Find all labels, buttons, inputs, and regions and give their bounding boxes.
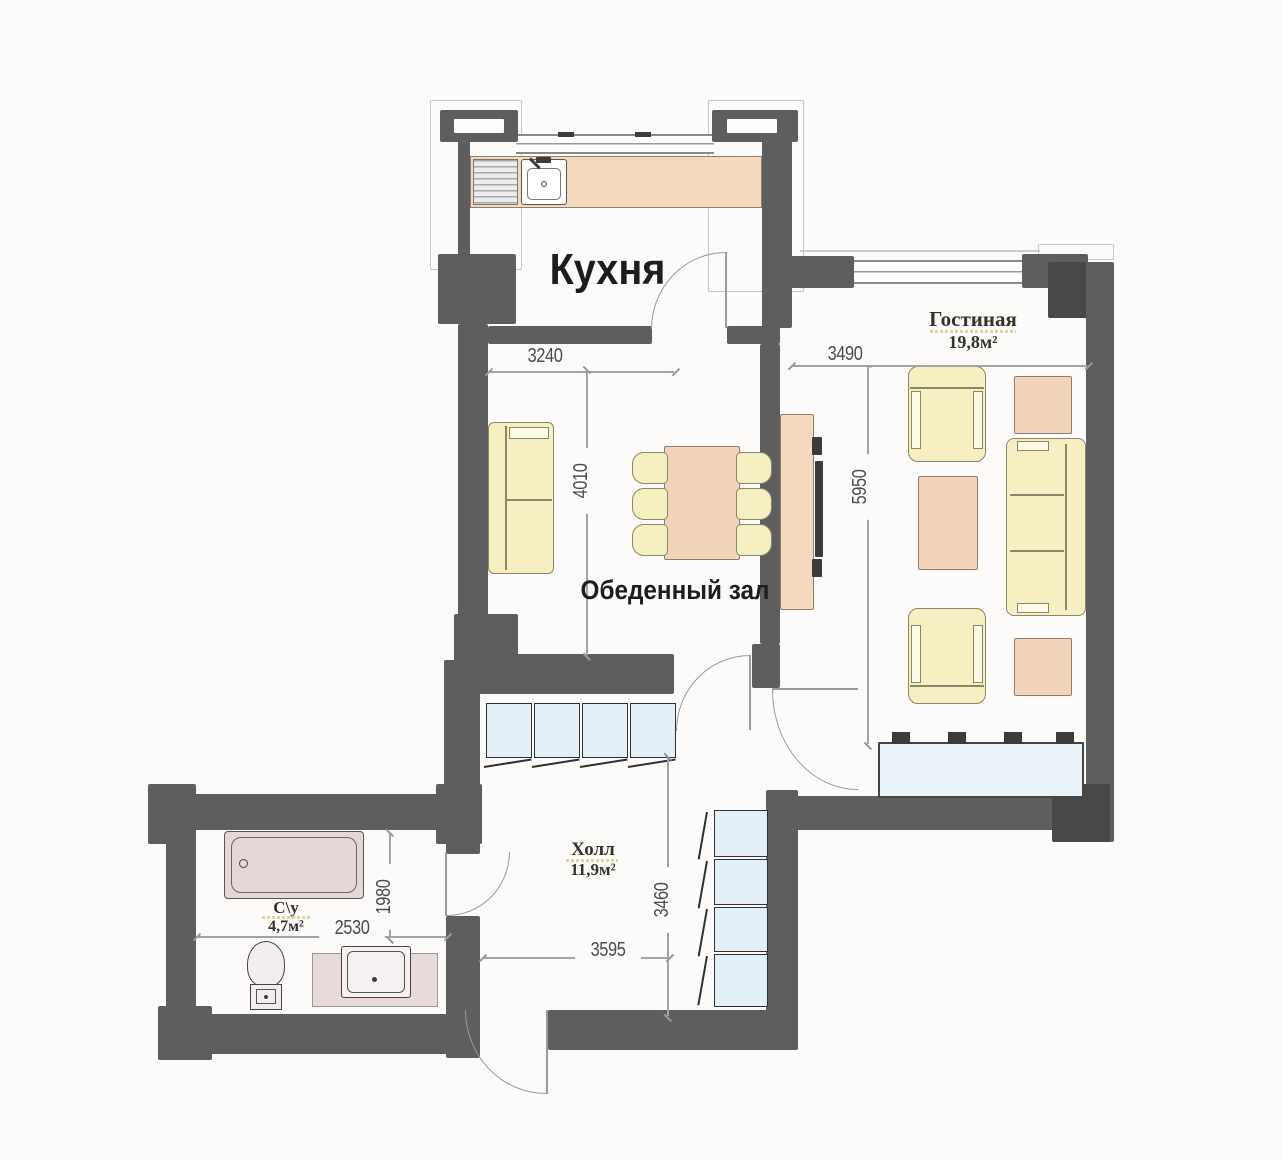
living-sofa-arm bbox=[1017, 603, 1049, 613]
wardrobe-door-line bbox=[697, 956, 708, 1006]
kitchen-window-mullion bbox=[558, 132, 574, 137]
bathroom-door-leaf bbox=[445, 852, 447, 916]
wall-living-top-stub bbox=[772, 256, 854, 288]
dim-label-3460: 3460 bbox=[651, 867, 673, 933]
wall-bath-left bbox=[166, 828, 196, 1024]
hall-wardrobe bbox=[714, 859, 768, 905]
room-label-kitchen: Кухня bbox=[506, 246, 709, 296]
dining-door-leaf bbox=[749, 655, 751, 730]
room-label-dining: Обеденный зал bbox=[572, 576, 779, 606]
room-name-bathroom: С\у bbox=[273, 898, 299, 917]
wall-kitchen-right bbox=[762, 138, 792, 328]
room-area-living: 19,8м² bbox=[948, 332, 997, 352]
wardrobe-door-line bbox=[698, 861, 708, 909]
vanity-drain bbox=[372, 977, 377, 982]
pillar-bath-right bbox=[436, 784, 482, 844]
room-area-bathroom: 4,7м² bbox=[268, 918, 304, 935]
kitchen-sink-drain bbox=[541, 181, 547, 187]
tv-stand bbox=[780, 414, 814, 610]
dim-label-3240: 3240 bbox=[512, 345, 578, 367]
wall-kitchen-south-left bbox=[488, 326, 652, 344]
wardrobe-door-line bbox=[698, 812, 708, 860]
living-door-arc bbox=[772, 690, 858, 790]
dining-chair bbox=[632, 488, 668, 520]
sill-tick bbox=[948, 732, 966, 744]
sill-tick bbox=[1056, 732, 1074, 744]
tv-bracket bbox=[812, 437, 822, 455]
pillar-slot-right bbox=[727, 119, 777, 133]
dining-sofa-pillow bbox=[509, 427, 549, 439]
hall-wardrobe bbox=[486, 703, 532, 758]
armchair-arm bbox=[911, 625, 921, 683]
dim-line-3490 bbox=[793, 365, 1087, 367]
hall-wardrobe bbox=[714, 810, 768, 857]
kitchen-window bbox=[516, 134, 714, 154]
outline-living-window bbox=[800, 250, 1040, 252]
side-table-top bbox=[1014, 376, 1072, 434]
kitchen-door-leaf bbox=[725, 252, 727, 328]
wall-kitchen-south-right bbox=[727, 326, 780, 344]
toilet-bowl bbox=[247, 941, 285, 987]
floor-plan: 3240 4010 3490 5950 3460 3595 1980 2530 … bbox=[0, 0, 1282, 1161]
dining-chair bbox=[632, 524, 668, 556]
tv-panel bbox=[815, 461, 823, 557]
armchair-arm bbox=[911, 391, 921, 449]
room-label-living-underline bbox=[930, 330, 1016, 333]
dining-sofa-seam bbox=[507, 499, 552, 501]
kitchen-window-mullion bbox=[635, 132, 651, 137]
coffee-table bbox=[918, 476, 978, 570]
tv-bracket bbox=[812, 559, 822, 577]
dim-label-3490: 3490 bbox=[812, 343, 878, 365]
dining-chair bbox=[736, 524, 772, 556]
hall-wardrobe bbox=[534, 703, 580, 758]
living-sofa bbox=[1006, 438, 1086, 616]
room-label-bathroom-underline bbox=[262, 916, 310, 919]
dim-label-5950: 5950 bbox=[849, 454, 871, 520]
hall-wardrobe bbox=[714, 907, 768, 952]
side-table-bottom bbox=[1014, 638, 1072, 696]
dining-sofa bbox=[488, 422, 554, 574]
sill-tick bbox=[892, 732, 910, 744]
room-name-hall: Холл bbox=[571, 839, 615, 860]
living-sofa-seam bbox=[1010, 494, 1064, 496]
living-window-sill bbox=[878, 742, 1084, 798]
armchair-backline bbox=[910, 685, 984, 687]
wall-bath-bottom bbox=[166, 1014, 468, 1054]
sill-tick bbox=[1004, 732, 1022, 744]
living-sofa-arm bbox=[1017, 441, 1049, 451]
room-label-hall-underline bbox=[566, 859, 618, 862]
dining-chair bbox=[632, 452, 668, 484]
pillar-slot-left bbox=[454, 119, 504, 133]
dining-table bbox=[664, 446, 740, 560]
dim-label-4010: 4010 bbox=[570, 448, 592, 514]
bathroom-door-arc bbox=[447, 852, 510, 916]
armchair-backline bbox=[910, 387, 984, 389]
bathtub-basin bbox=[231, 837, 357, 893]
armchair-arm bbox=[973, 625, 983, 683]
armchair-arm bbox=[973, 391, 983, 449]
wardrobe-door-line bbox=[580, 759, 628, 768]
wardrobe-door-line bbox=[698, 909, 708, 957]
entry-door-arc bbox=[465, 1010, 546, 1094]
kitchen-faucet bbox=[536, 157, 551, 163]
bathtub-drain bbox=[239, 859, 248, 868]
dim-label-2530: 2530 bbox=[319, 917, 385, 939]
wardrobe-door-line bbox=[484, 759, 532, 768]
room-name-living: Гостиная bbox=[929, 307, 1017, 331]
hall-wardrobe bbox=[582, 703, 628, 758]
pillar-left-upper bbox=[438, 254, 516, 324]
wall-dining-right-stub bbox=[752, 644, 780, 688]
room-area-hall: 11,9м² bbox=[570, 860, 616, 879]
living-sofa-backline bbox=[1065, 444, 1067, 610]
wall-hall-left-upper bbox=[444, 660, 480, 786]
toilet-button bbox=[264, 995, 268, 999]
dining-chair bbox=[736, 488, 772, 520]
vanity-sink-basin bbox=[347, 951, 405, 993]
living-sofa-seam bbox=[1010, 550, 1064, 552]
dining-sofa-backline bbox=[505, 426, 507, 570]
wall-kitchen-left bbox=[458, 138, 470, 260]
wall-bath-top bbox=[168, 794, 438, 830]
living-window-top bbox=[852, 260, 1024, 284]
entry-door-leaf bbox=[546, 1010, 548, 1094]
wall-living-right bbox=[1086, 262, 1114, 842]
wall-living-bottom bbox=[772, 796, 1056, 830]
living-door-leaf bbox=[772, 688, 858, 690]
dining-door-arc bbox=[676, 655, 750, 731]
hall-wardrobe bbox=[714, 954, 768, 1007]
wall-dining-left bbox=[458, 324, 488, 617]
wardrobe-door-line bbox=[532, 759, 580, 768]
hall-wardrobe bbox=[630, 703, 676, 758]
dim-label-3595: 3595 bbox=[575, 939, 641, 961]
wall-dining-hall bbox=[478, 654, 674, 694]
wall-entry-bottom bbox=[548, 1010, 798, 1050]
dim-line-3240 bbox=[490, 371, 674, 373]
kitchen-drainboard bbox=[473, 159, 518, 205]
dim-line-5950 bbox=[867, 365, 869, 744]
dining-chair bbox=[736, 452, 772, 484]
